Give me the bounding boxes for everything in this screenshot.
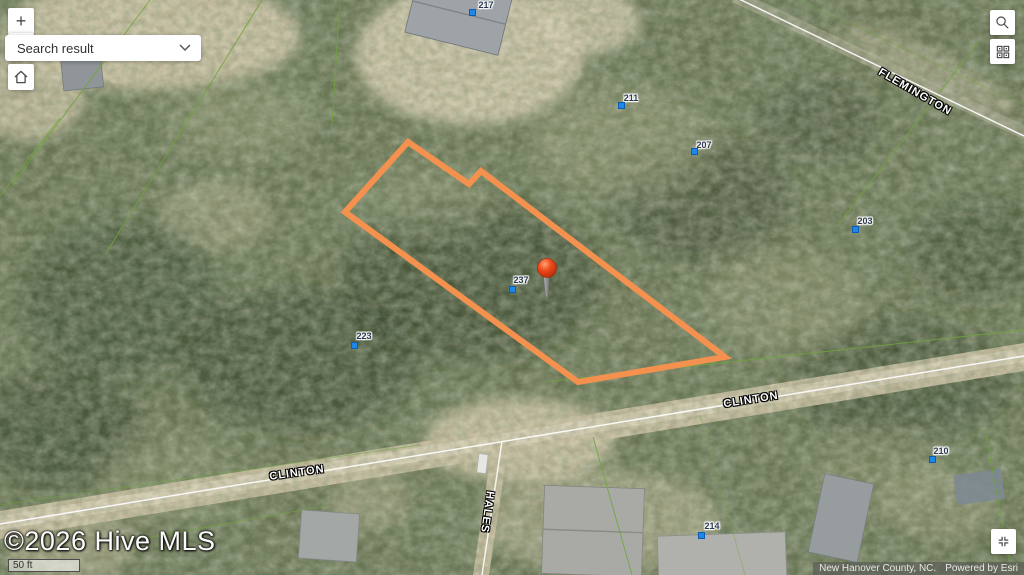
parcel-number: 207 (696, 140, 711, 150)
search-result-value: Search result (5, 41, 173, 56)
address-point[interactable] (509, 286, 516, 293)
attribution-powered-by: Powered by Esri (945, 563, 1018, 574)
qr-code-button[interactable] (990, 39, 1015, 64)
address-point[interactable] (618, 102, 625, 109)
chevron-down-icon (173, 44, 201, 52)
map-attribution: New Hanover County, NC. Powered by Esri (813, 562, 1024, 575)
plus-icon: + (16, 12, 27, 30)
parcel-number: 210 (933, 446, 948, 456)
full-extent-icon (995, 533, 1012, 550)
home-icon (12, 68, 30, 86)
parcel-number: 237 (513, 275, 528, 285)
address-point[interactable] (698, 532, 705, 539)
magnifier-icon (994, 14, 1011, 31)
parcel-number: 211 (624, 93, 639, 103)
address-point[interactable] (351, 342, 358, 349)
map-canvas[interactable]: FLEMINGTON CLINTON CLINTON HALES 217 211… (0, 0, 1024, 575)
address-point[interactable] (469, 9, 476, 16)
parcel-number: 214 (704, 521, 719, 531)
search-result-dropdown[interactable]: Search result (5, 35, 201, 61)
home-button[interactable] (8, 64, 34, 90)
address-point[interactable] (929, 456, 936, 463)
parcel-number: 217 (478, 0, 493, 10)
address-point[interactable] (852, 226, 859, 233)
attribution-source: New Hanover County, NC. (819, 563, 936, 574)
address-point[interactable] (691, 148, 698, 155)
scale-bar: 50 ft (8, 559, 80, 572)
qr-code-icon (995, 44, 1011, 60)
car (477, 454, 488, 474)
search-button[interactable] (990, 10, 1015, 35)
scale-label: 50 ft (13, 560, 32, 571)
parcel-number: 203 (857, 216, 872, 226)
parcel-number: 223 (356, 331, 371, 341)
copyright-watermark: ©2026 Hive MLS (4, 526, 216, 557)
zoom-in-button[interactable]: + (8, 8, 34, 34)
full-extent-button[interactable] (991, 529, 1016, 554)
